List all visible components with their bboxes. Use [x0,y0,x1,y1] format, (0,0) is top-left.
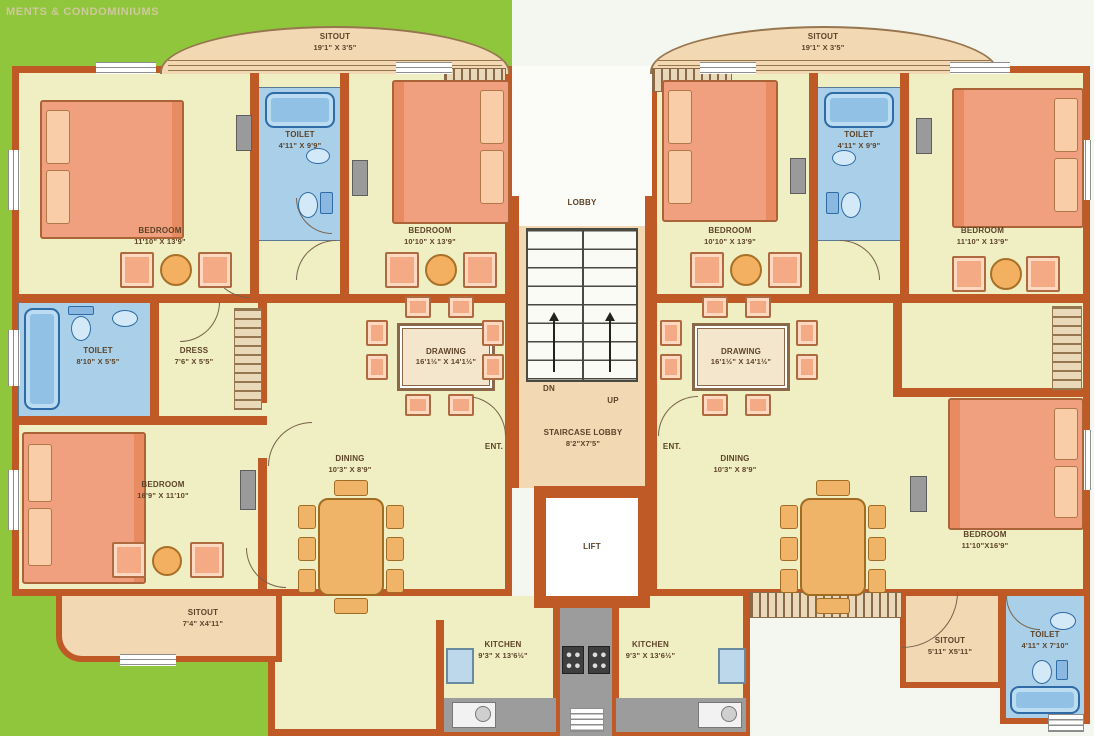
dining-chair [298,569,316,593]
pillow [46,110,70,164]
pillow [1054,158,1078,212]
sofa-seat [660,320,682,346]
left-drawing-label: DRAWING 16'1½" X 14'1½" [416,347,476,368]
bedside-table [352,160,368,196]
right-toilet-top-label: TOILET 4'11" X 9'9" [818,130,900,151]
round-table [152,546,182,576]
toilet-tank [826,192,839,214]
staircase-lobby-label: STAIRCASE LOBBY 8'2"X7'5" [515,428,651,449]
chair-seat [690,252,724,288]
chair-seat [120,252,154,288]
stair-arrow-up [609,316,611,372]
washing-machine [698,702,742,728]
window [8,470,20,530]
drawing-room-rug: DRAWING 16'1½" X 14'1½" [397,323,495,391]
wardrobe [234,308,262,410]
pillow [480,90,504,144]
blanket-fold [394,82,404,222]
bedside-table [790,158,806,194]
left-sitout-bottom-label: SITOUT 7'4" X4'11" [148,608,258,629]
pillow [668,90,692,144]
window [120,654,176,666]
lobby-label: LOBBY [537,198,627,209]
wall [809,73,818,295]
left-kitchen-label: KITCHEN 9'3" X 13'6½" [448,640,558,661]
sofa-seat [745,296,771,318]
bed [392,80,510,224]
right-toilet-bottom-label: TOILET 4'11" X 7'10" [1002,630,1088,651]
pillow [1054,466,1078,518]
toilet-tank [1056,660,1068,680]
staircase [526,228,638,382]
staircase-lobby-dim: 8'2"X7'5" [515,439,651,449]
sofa-seat [405,296,431,318]
pillow [668,150,692,204]
stair-divider [582,230,584,380]
toilet-bowl [298,192,318,218]
toilet-tank [320,192,333,214]
dining-chair [780,569,798,593]
drawing-room-rug: DRAWING 16'1½" X 14'1½" [692,323,790,391]
chair-seat [1026,256,1060,292]
chair-seat [952,256,986,292]
bed [40,100,184,239]
bedside-table [916,118,932,154]
dining-chair [780,505,798,529]
dining-chair [386,569,404,593]
left-dress-label: DRESS 7'6" X 5'5" [152,346,236,367]
sofa-seat [482,320,504,346]
dining-chair [334,598,368,614]
washing-machine-drum [721,706,737,722]
floor-plan: MENTS & CONDOMINIUMS DN UP LOBBY STAIRCA… [0,0,1094,736]
entry-steps [1048,714,1084,732]
sofa-seat [482,354,504,380]
toilet-tank [68,306,94,315]
round-table [730,254,762,286]
toilet-bowl [1032,660,1052,684]
blanket-fold [954,90,964,226]
dining-chair [868,505,886,529]
dining-chair [298,537,316,561]
washing-machine [452,702,496,728]
right-dining-label: DINING 10'3" X 8'9" [680,454,790,475]
left-toilet-top-label: TOILET 4'11" X 9'9" [259,130,341,151]
washbasin [1050,612,1076,630]
left-bedroom1-label: BEDROOM 11'10" X 13'9" [85,226,235,247]
dining-table [318,498,384,596]
wall [19,294,505,303]
dining-chair [386,537,404,561]
pillow [28,508,52,566]
chair-seat [198,252,232,288]
chair-seat [385,252,419,288]
right-sitout-bottom-label: SITOUT 5'11" X5'11" [902,636,998,657]
right-bedroom-top-label: BEDROOM 11'10" X 13'9" [905,226,1060,247]
wall [340,73,349,298]
window [96,62,156,74]
stair-arrow-dn [553,316,555,372]
left-toilet-mid-label: TOILET 8'10" X 5'5" [52,346,144,367]
dining-chair [298,505,316,529]
staircase-lobby-name: STAIRCASE LOBBY [515,428,651,439]
dining-chair [868,569,886,593]
bathtub [265,92,335,128]
dining-chair [780,537,798,561]
pillow [1054,98,1078,152]
dining-table [800,498,866,596]
lift-label: LIFT [583,542,601,553]
sofa-seat [448,394,474,416]
window [950,62,1010,74]
left-bedroom2-label: BEDROOM 10'10" X 13'9" [355,226,505,247]
toilet-bowl [71,316,91,341]
sofa-seat [366,320,388,346]
chair-seat [463,252,497,288]
round-table [160,254,192,286]
sofa-seat [405,394,431,416]
sofa-seat [796,320,818,346]
chair-seat [112,542,146,578]
round-table [990,258,1022,290]
wall [436,620,444,736]
sofa-seat [796,354,818,380]
bathtub [1010,686,1080,714]
dining-chair [816,480,850,496]
sofa-seat [702,394,728,416]
wall [19,416,267,425]
sofa-seat [660,354,682,380]
stove-left [562,646,584,674]
wall [250,73,259,298]
right-drawing-label: DRAWING 16'1½" X 14'1½" [711,347,771,368]
wall [893,303,902,395]
dining-chair [816,598,850,614]
dining-chair [868,537,886,561]
dining-chair [334,480,368,496]
right-bedroom-mid-label: BEDROOM 10'10" X 13'9" [655,226,805,247]
right-bedroom-bottom-label: BEDROOM 11'10"X16'9" [910,530,1060,551]
left-bedroom3-label: BEDROOM 16'9" X 11'10" [88,480,238,501]
bed [662,80,778,222]
dining-chair [386,505,404,529]
window [8,330,20,386]
bed [952,88,1084,228]
round-table [425,254,457,286]
wardrobe [1052,306,1082,390]
stair-up-label: UP [598,396,628,407]
ent-left-label: ENT. [478,442,510,453]
lift-shaft: LIFT [534,486,650,608]
page-title: MENTS & CONDOMINIUMS [6,6,159,19]
toilet-bowl [841,192,861,218]
left-sitout-top-label: SITOUT 19'1" X 3'5" [260,32,410,53]
pillow [28,444,52,502]
window [396,62,452,74]
window [8,150,20,210]
shaft-steps [570,708,604,732]
pillow [1054,408,1078,460]
ent-right-label: ENT. [656,442,688,453]
window [700,62,756,74]
chair-seat [768,252,802,288]
washbasin [832,150,856,166]
washing-machine-drum [475,706,491,722]
stair-dn-label: DN [534,384,564,395]
sofa-seat [366,354,388,380]
wall [900,73,909,295]
right-sitout-top-label: SITOUT 19'1" X 3'5" [748,32,898,53]
blanket-fold [766,82,776,220]
blanket-fold [950,400,960,528]
sofa-seat [702,296,728,318]
chair-seat [190,542,224,578]
sofa-seat [745,394,771,416]
wardrobe-box [910,476,927,512]
wardrobe-box [240,470,256,510]
right-kitchen-label: KITCHEN 9'3" X 13'6½" [598,640,703,661]
pillow [46,170,70,224]
bed [948,398,1084,530]
bedside-table [236,115,252,151]
kitchen-sink [718,648,746,684]
left-dining-label: DINING 10'3" X 8'9" [295,454,405,475]
sofa-seat [448,296,474,318]
blanket-fold [172,102,182,237]
washbasin [112,310,138,327]
pillow [480,150,504,204]
bathtub [824,92,894,128]
